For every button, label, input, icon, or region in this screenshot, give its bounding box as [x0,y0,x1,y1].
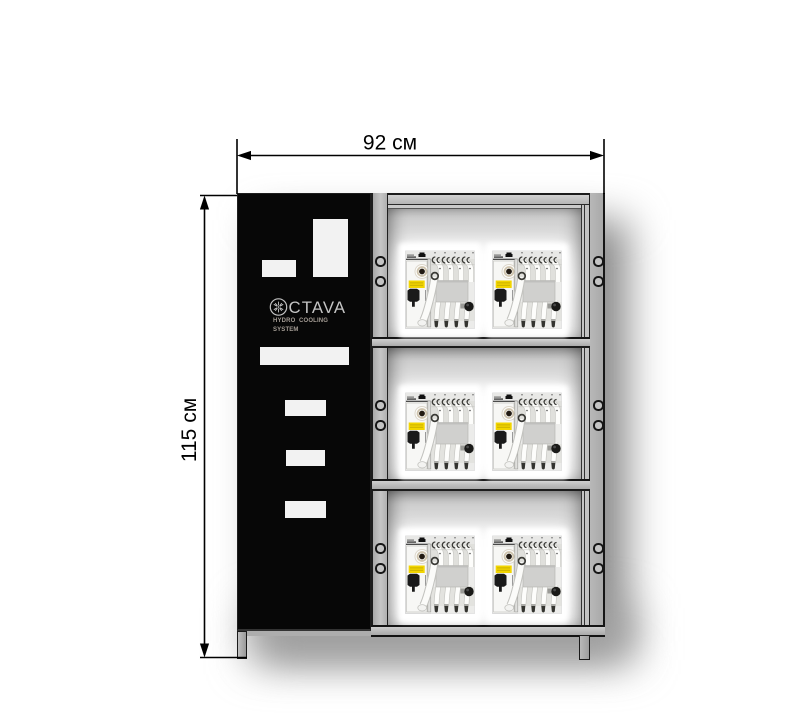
svg-text:115 см: 115 см [178,398,201,462]
svg-text:92 см: 92 см [363,132,417,155]
